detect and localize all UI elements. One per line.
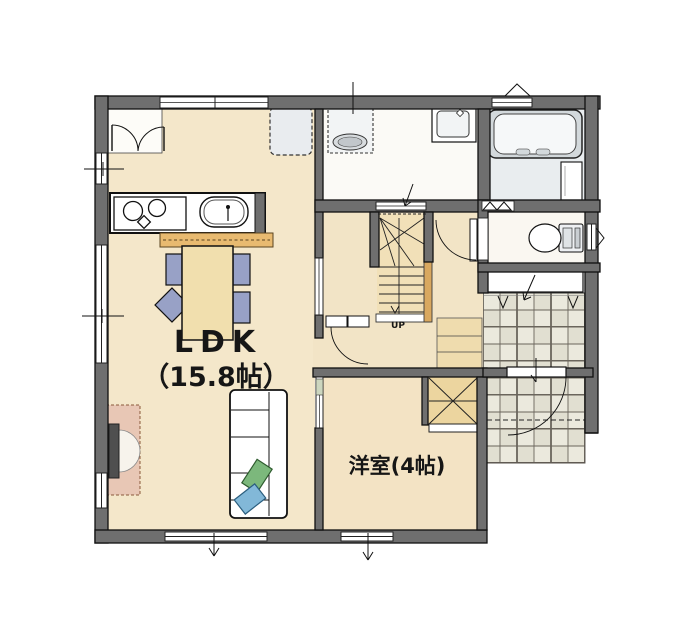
ldk-label: LDK	[174, 325, 262, 360]
counter-end-panel	[255, 193, 265, 233]
floor-plan-canvas: LDK （15.8帖） 洋室(4帖) UP	[0, 0, 689, 640]
left-window-2	[96, 245, 107, 363]
bath-folding-door	[482, 201, 514, 211]
floor-plan: LDK （15.8帖） 洋室(4帖) UP	[0, 0, 689, 640]
dining-chair	[233, 292, 250, 323]
tv-board	[106, 405, 140, 495]
western-room-closet	[428, 377, 478, 432]
closet-door	[429, 424, 477, 432]
kitchen-sink	[200, 197, 248, 227]
dining-chair	[233, 254, 250, 285]
toilet	[529, 224, 583, 252]
ldk-hall-sliding-door	[315, 258, 323, 315]
washing-machine-pan	[328, 108, 373, 153]
tv-icon	[109, 424, 119, 478]
bathtub	[488, 110, 582, 158]
closet-double-door	[108, 109, 164, 153]
refrigerator-space	[270, 107, 312, 155]
ldk-south-window	[165, 532, 267, 541]
kitchen-window	[160, 97, 268, 108]
vent-triangle	[505, 84, 530, 96]
toilet-window	[587, 224, 596, 250]
bath-counter	[561, 162, 582, 200]
gas-stove	[114, 197, 186, 230]
entrance-tiles	[483, 293, 585, 368]
stair-handrail	[424, 262, 432, 322]
wall-bottom	[95, 530, 487, 543]
western-room-south-window	[341, 532, 393, 541]
western-room-sliding-door	[316, 377, 323, 428]
under-stair-steps	[437, 318, 482, 368]
dining-chair	[166, 254, 182, 285]
sofa	[230, 390, 287, 518]
washroom-window	[492, 98, 532, 107]
ldk-size-label: （15.8帖）	[142, 362, 290, 393]
left-window-3	[96, 473, 107, 508]
western-room-label: 洋室(4帖)	[349, 454, 446, 478]
stairs-up-label: UP	[391, 321, 405, 331]
vanity-basin	[432, 106, 476, 142]
